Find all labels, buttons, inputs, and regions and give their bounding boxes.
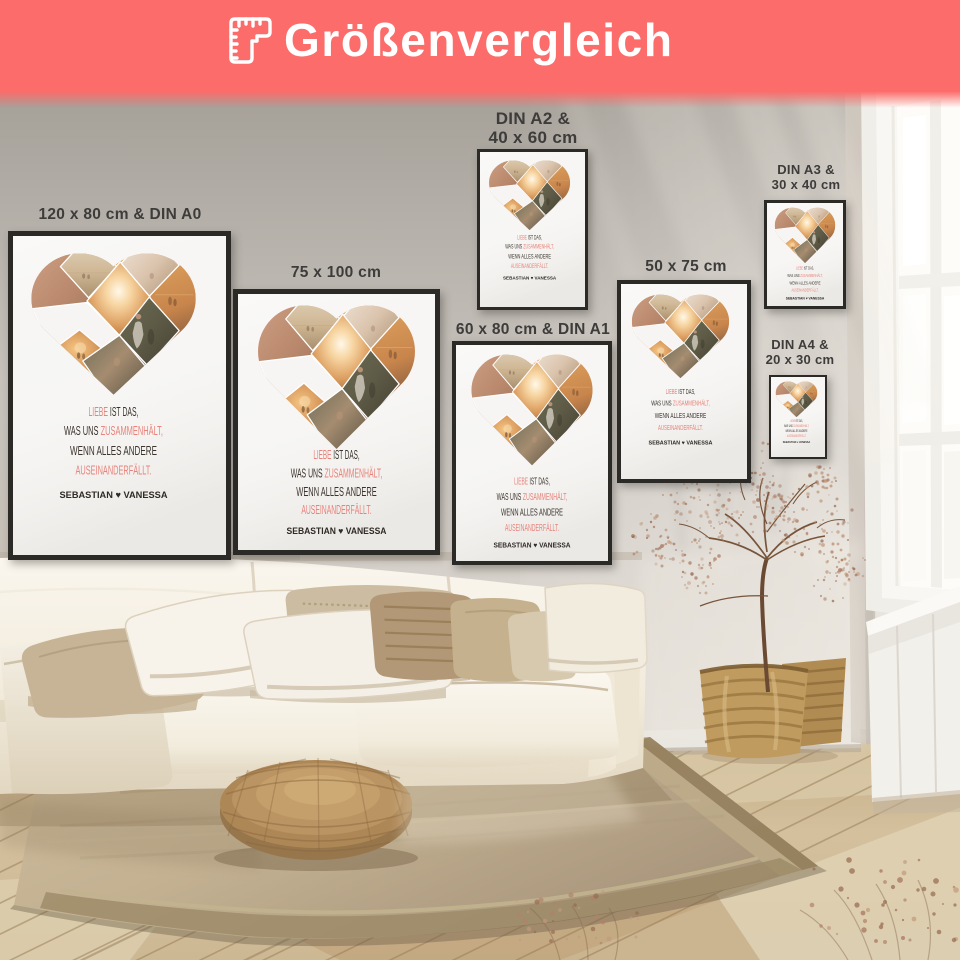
svg-text:WENN ALLES ANDERE: WENN ALLES ANDERE [655, 411, 706, 420]
svg-text:WAS UNS ZUSAMMENHÄLT,: WAS UNS ZUSAMMENHÄLT, [505, 243, 554, 251]
svg-text:SEBASTIAN ♥ VANESSA: SEBASTIAN ♥ VANESSA [786, 297, 825, 301]
svg-text:LIEBE IST DAS,: LIEBE IST DAS, [313, 448, 359, 462]
svg-text:SEBASTIAN ♥ VANESSA: SEBASTIAN ♥ VANESSA [783, 441, 811, 444]
svg-text:AUSEINANDERFÄLLT.: AUSEINANDERFÄLLT. [511, 262, 549, 270]
svg-text:WENN ALLES ANDERE: WENN ALLES ANDERE [786, 429, 809, 433]
svg-text:WAS UNS ZUSAMMENHÄLT,: WAS UNS ZUSAMMENHÄLT, [651, 399, 710, 408]
svg-text:AUSEINANDERFÄLLT.: AUSEINANDERFÄLLT. [787, 434, 806, 438]
svg-text:WAS UNS ZUSAMMENHÄLT,: WAS UNS ZUSAMMENHÄLT, [784, 424, 809, 428]
svg-text:WAS UNS ZUSAMMENHÄLT,: WAS UNS ZUSAMMENHÄLT, [291, 467, 383, 481]
svg-text:LIEBE IST DAS,: LIEBE IST DAS, [666, 387, 696, 396]
svg-text:WENN ALLES ANDERE: WENN ALLES ANDERE [70, 443, 157, 458]
svg-text:SEBASTIAN ♥ VANESSA: SEBASTIAN ♥ VANESSA [60, 490, 168, 500]
svg-text:LIEBE IST DAS,: LIEBE IST DAS, [88, 404, 138, 419]
svg-text:AUSEINANDERFÄLLT.: AUSEINANDERFÄLLT. [505, 523, 559, 534]
svg-text:WAS UNS ZUSAMMENHÄLT,: WAS UNS ZUSAMMENHÄLT, [497, 492, 568, 503]
svg-text:LIEBE IST DAS,: LIEBE IST DAS, [517, 234, 542, 241]
svg-text:SEBASTIAN ♥ VANESSA: SEBASTIAN ♥ VANESSA [287, 526, 387, 536]
svg-text:WENN ALLES ANDERE: WENN ALLES ANDERE [296, 485, 376, 499]
svg-text:WAS UNS ZUSAMMENHÄLT,: WAS UNS ZUSAMMENHÄLT, [787, 272, 822, 279]
svg-text:AUSEINANDERFÄLLT.: AUSEINANDERFÄLLT. [76, 463, 152, 478]
svg-text:WENN ALLES ANDERE: WENN ALLES ANDERE [501, 508, 563, 519]
svg-text:AUSEINANDERFÄLLT.: AUSEINANDERFÄLLT. [658, 423, 703, 432]
svg-text:AUSEINANDERFÄLLT.: AUSEINANDERFÄLLT. [791, 287, 818, 294]
svg-text:WENN ALLES ANDERE: WENN ALLES ANDERE [508, 253, 551, 260]
svg-text:LIEBE IST DAS,: LIEBE IST DAS, [514, 476, 550, 487]
svg-text:SEBASTIAN ♥ VANESSA: SEBASTIAN ♥ VANESSA [649, 440, 713, 446]
svg-text:AUSEINANDERFÄLLT.: AUSEINANDERFÄLLT. [301, 503, 371, 517]
svg-text:WAS UNS ZUSAMMENHÄLT,: WAS UNS ZUSAMMENHÄLT, [64, 423, 163, 438]
svg-text:LIEBE IST DAS,: LIEBE IST DAS, [796, 265, 814, 271]
svg-text:SEBASTIAN ♥ VANESSA: SEBASTIAN ♥ VANESSA [493, 543, 570, 550]
svg-text:WENN ALLES ANDERE: WENN ALLES ANDERE [790, 280, 821, 286]
svg-text:SEBASTIAN ♥ VANESSA: SEBASTIAN ♥ VANESSA [503, 275, 557, 280]
svg-text:LIEBE IST DAS,: LIEBE IST DAS, [790, 419, 803, 423]
